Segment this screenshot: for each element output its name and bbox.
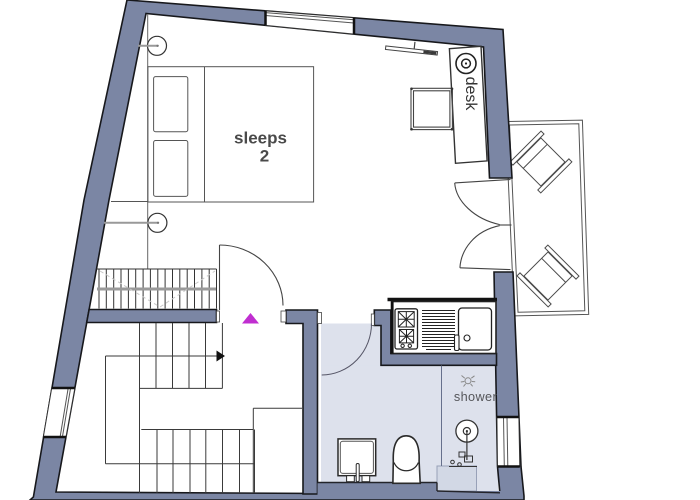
svg-text:shower: shower [454, 390, 498, 404]
svg-text:desk: desk [462, 77, 479, 112]
svg-text:2: 2 [260, 147, 269, 166]
svg-text:sleeps: sleeps [234, 129, 287, 148]
